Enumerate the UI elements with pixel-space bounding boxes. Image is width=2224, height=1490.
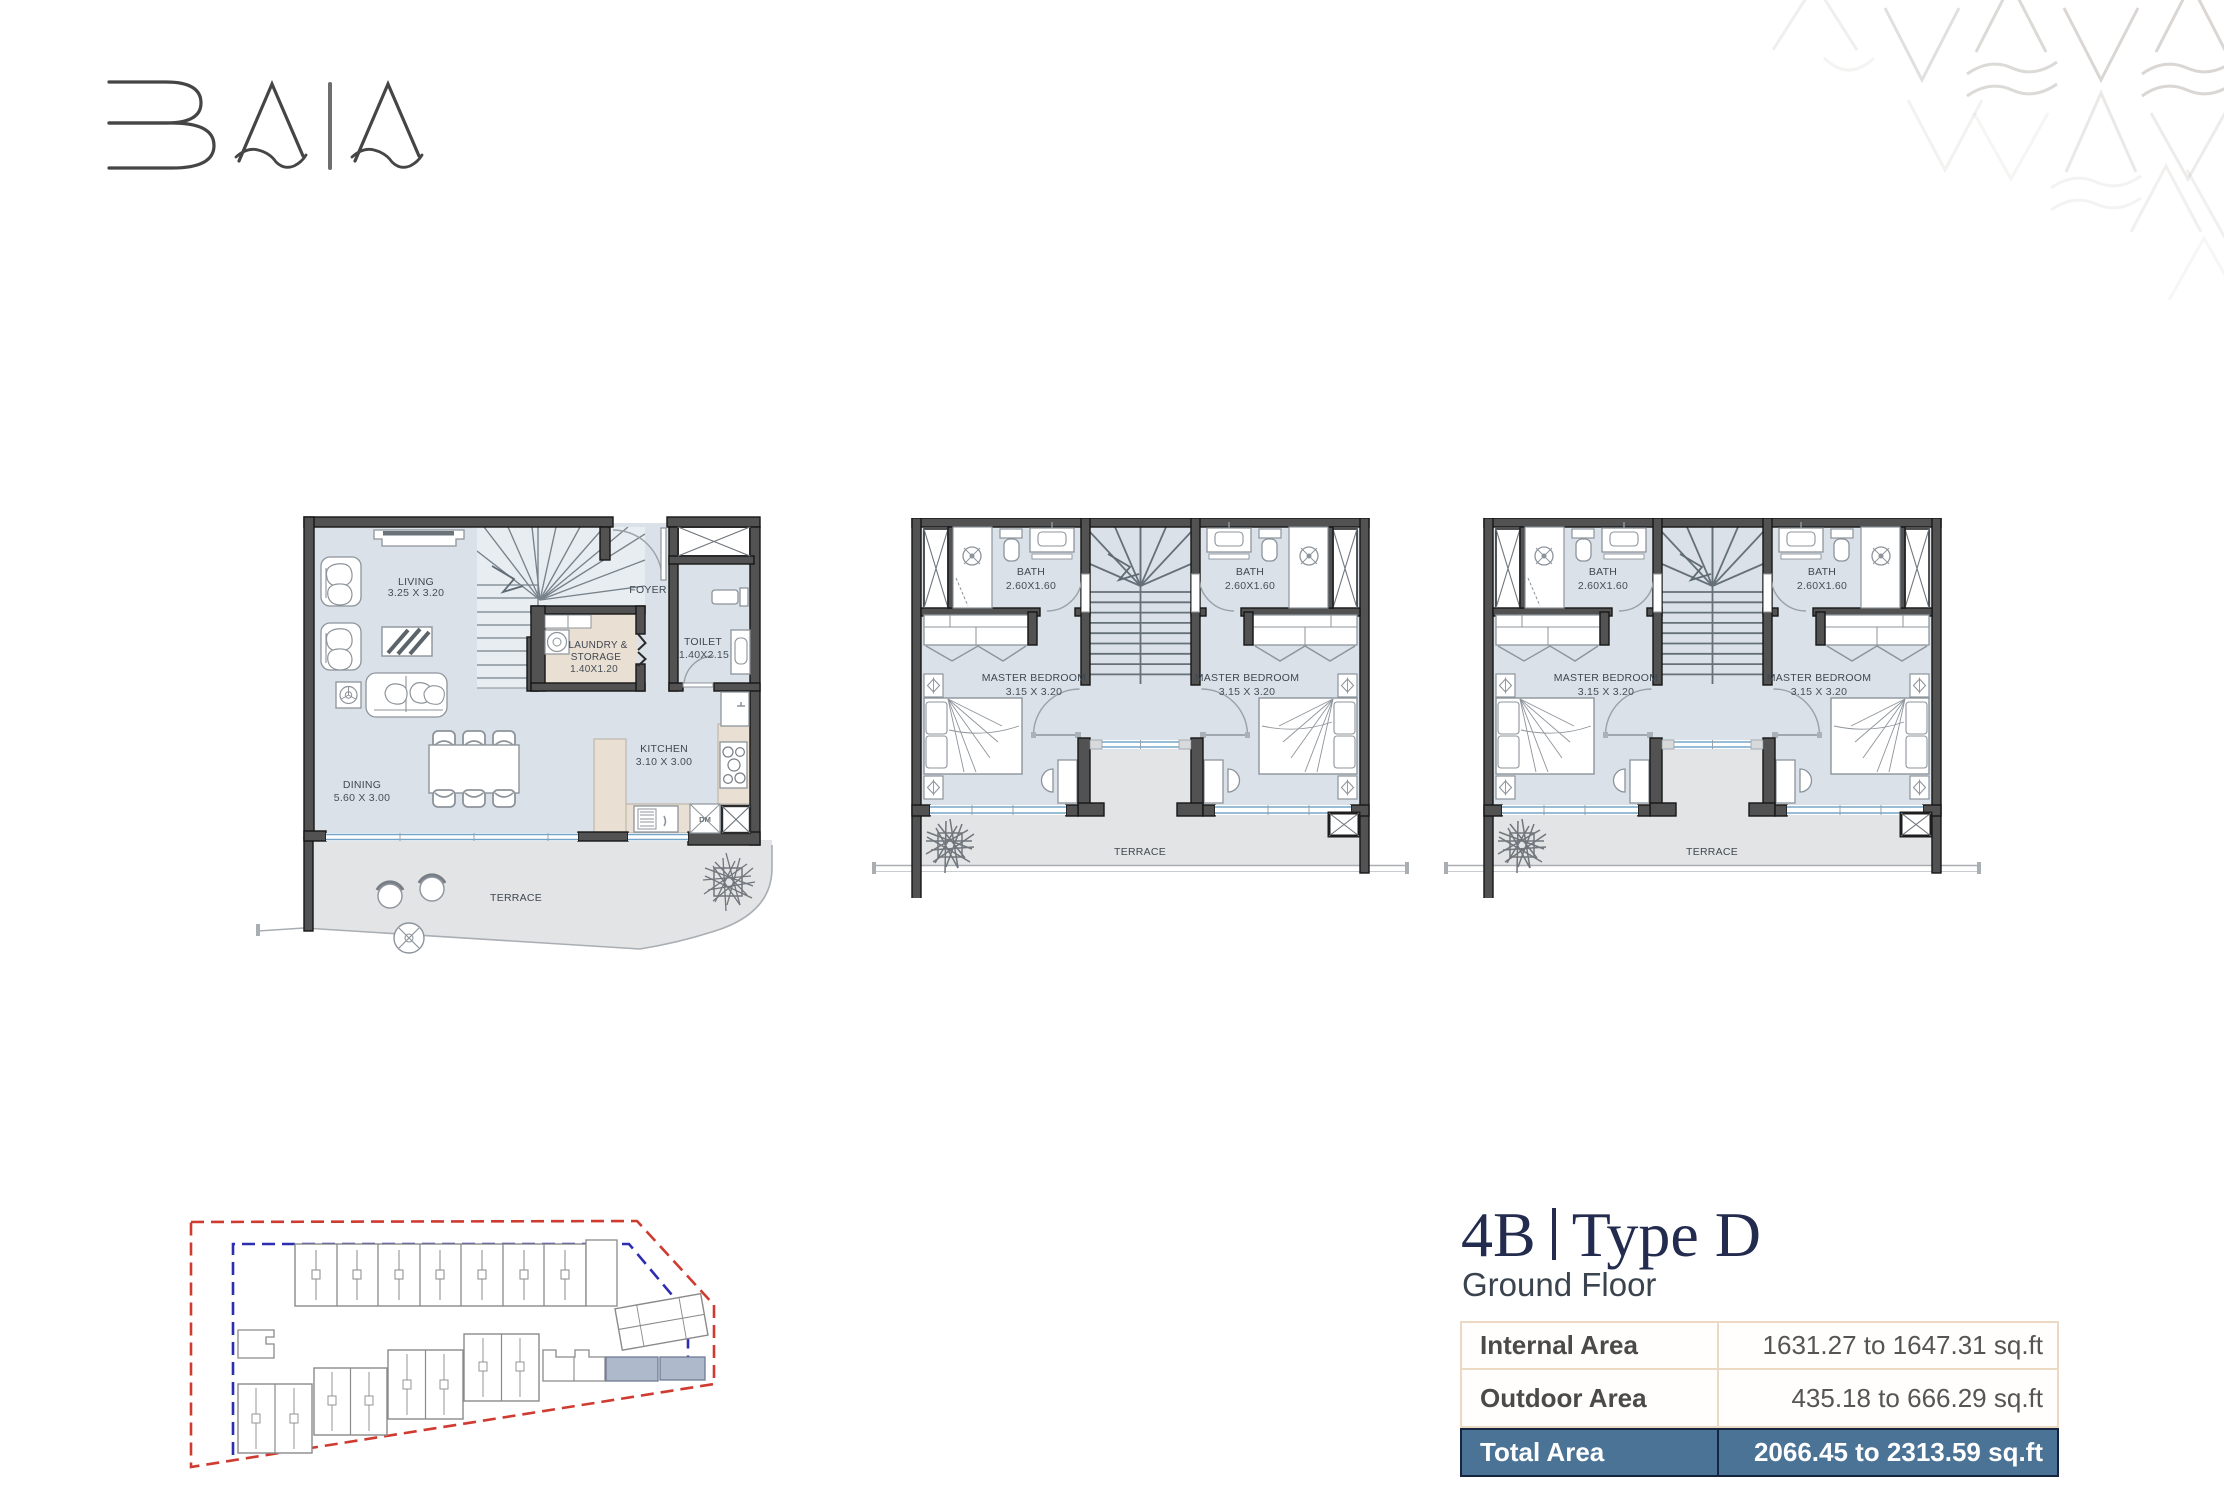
svg-text:TERRACE: TERRACE [490,892,542,904]
svg-text:KITCHEN: KITCHEN [640,743,688,755]
svg-text:1.40X1.20: 1.40X1.20 [570,664,618,675]
svg-text:3.10 X 3.00: 3.10 X 3.00 [636,756,692,768]
svg-text:5.60 X 3.00: 5.60 X 3.00 [334,792,390,804]
svg-text:FOYER: FOYER [629,584,667,596]
svg-text:TOILET: TOILET [684,636,722,648]
svg-text:3.25 X 3.20: 3.25 X 3.20 [388,587,444,599]
svg-text:STORAGE: STORAGE [571,652,622,663]
svg-text:DINING: DINING [343,779,381,791]
svg-text:1.40X2.15: 1.40X2.15 [679,649,729,661]
svg-text:LAUNDRY &: LAUNDRY & [568,640,627,651]
svg-text:DM: DM [699,815,711,824]
